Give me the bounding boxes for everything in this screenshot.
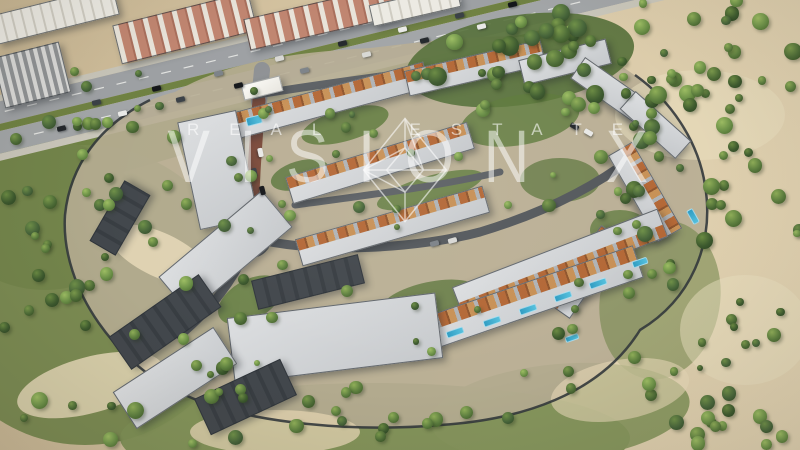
tree — [491, 79, 502, 90]
tree — [70, 67, 79, 76]
tree — [181, 198, 192, 209]
tree — [454, 152, 462, 160]
tree — [613, 227, 621, 235]
tree — [43, 195, 57, 209]
tree — [341, 122, 351, 132]
tree — [660, 49, 668, 57]
aerial-render-scene: VISION X REAL ESTATE — [0, 0, 800, 450]
tree — [577, 63, 591, 77]
tree — [70, 289, 82, 301]
tree — [411, 302, 420, 311]
tree — [568, 19, 587, 38]
tree — [687, 12, 701, 26]
trees-layer — [0, 0, 800, 450]
tree — [102, 117, 113, 128]
tree — [752, 339, 760, 347]
tree — [566, 383, 576, 393]
tree — [460, 406, 473, 419]
tree — [667, 278, 679, 290]
tree — [42, 115, 56, 129]
tree — [619, 73, 627, 81]
tree — [228, 430, 243, 445]
tree — [77, 149, 88, 160]
tree — [736, 298, 744, 306]
tree — [594, 150, 608, 164]
tree — [81, 81, 92, 92]
tree — [735, 94, 744, 103]
tree — [698, 338, 707, 347]
tree — [621, 88, 632, 99]
tree — [647, 269, 657, 279]
tree — [585, 35, 597, 47]
tree — [721, 16, 730, 25]
tree — [215, 388, 223, 396]
tree — [90, 118, 102, 130]
tree — [596, 210, 605, 219]
tree — [103, 199, 115, 211]
tree — [552, 327, 565, 340]
tree — [266, 312, 278, 324]
tree — [721, 358, 730, 367]
tree — [24, 305, 34, 315]
tree — [45, 293, 59, 307]
tree — [784, 43, 800, 60]
tree — [341, 285, 353, 297]
tree — [670, 367, 678, 375]
tree — [341, 387, 351, 397]
tree — [104, 173, 114, 183]
tree — [392, 205, 400, 213]
tree — [719, 180, 729, 190]
tree — [480, 100, 490, 110]
tree — [676, 164, 684, 172]
tree — [349, 111, 356, 118]
tree — [654, 151, 665, 162]
tree — [744, 148, 753, 157]
tree — [730, 323, 738, 331]
tree — [407, 149, 415, 157]
tree — [527, 54, 542, 69]
tree — [492, 39, 506, 53]
tree — [632, 120, 639, 127]
tree — [524, 30, 540, 46]
tree — [639, 0, 648, 8]
tree — [277, 260, 288, 271]
tree — [107, 402, 115, 410]
tree — [101, 253, 109, 261]
tree — [761, 439, 772, 450]
tree — [722, 404, 735, 417]
tree — [245, 170, 257, 182]
tree — [647, 76, 656, 85]
tree — [126, 121, 139, 134]
tree — [167, 130, 181, 144]
tree — [710, 421, 721, 432]
tree — [728, 75, 741, 88]
tree — [41, 244, 50, 253]
tree — [179, 276, 193, 290]
tree — [700, 395, 715, 410]
tree — [422, 418, 433, 429]
tree — [31, 232, 40, 241]
tree — [135, 70, 142, 77]
tree — [725, 104, 735, 114]
tree — [191, 360, 203, 372]
tree — [353, 201, 365, 213]
tree — [550, 172, 557, 179]
tree — [725, 210, 742, 227]
tree — [427, 347, 436, 356]
tree — [716, 117, 733, 134]
tree — [567, 324, 577, 334]
tree — [730, 0, 742, 7]
tree — [31, 392, 48, 409]
tree — [218, 219, 231, 232]
tree — [748, 158, 763, 173]
tree — [645, 389, 657, 401]
tree — [254, 360, 260, 366]
tree — [155, 102, 164, 111]
tree — [188, 439, 197, 448]
tree — [683, 98, 697, 112]
tree — [588, 102, 600, 114]
tree — [574, 278, 583, 287]
tree — [337, 416, 347, 426]
tree — [694, 61, 707, 74]
tree — [741, 340, 750, 349]
tree — [1, 190, 16, 205]
tree — [561, 108, 569, 116]
tree — [446, 34, 463, 51]
tree — [332, 150, 340, 158]
tree — [691, 436, 706, 450]
tree — [428, 67, 447, 86]
tree — [776, 308, 784, 316]
tree — [716, 200, 726, 210]
tree — [278, 200, 286, 208]
tree — [767, 328, 781, 342]
tree — [669, 415, 684, 430]
tree — [375, 431, 386, 442]
tree — [220, 357, 234, 371]
tree — [68, 401, 77, 410]
tree — [127, 402, 144, 419]
tree — [84, 280, 95, 291]
tree — [771, 189, 786, 204]
tree — [634, 19, 650, 35]
tree — [719, 151, 728, 160]
tree — [614, 187, 623, 196]
tree — [411, 71, 421, 81]
tree — [623, 270, 633, 280]
tree — [162, 180, 173, 191]
tree — [394, 224, 400, 230]
tree — [724, 43, 733, 52]
tree — [80, 320, 91, 331]
tree — [793, 230, 800, 238]
tree — [643, 131, 657, 145]
tree — [32, 269, 45, 282]
tree — [542, 199, 556, 213]
tree — [129, 329, 141, 341]
tree — [413, 338, 420, 345]
tree — [623, 287, 635, 299]
tree — [663, 262, 676, 275]
tree — [234, 173, 243, 182]
tree — [649, 86, 667, 104]
tree — [0, 322, 10, 333]
tree — [325, 108, 336, 119]
tree — [238, 393, 248, 403]
tree — [752, 13, 768, 29]
tree — [388, 412, 399, 423]
tree — [620, 193, 632, 205]
tree — [234, 312, 247, 325]
tree — [331, 406, 342, 417]
tree — [265, 106, 272, 113]
tree — [266, 155, 273, 162]
tree — [760, 420, 774, 434]
tree — [238, 274, 249, 285]
tree — [250, 87, 258, 95]
tree — [637, 226, 653, 242]
tree — [504, 201, 512, 209]
tree — [148, 237, 158, 247]
tree — [696, 232, 713, 249]
tree — [546, 50, 563, 67]
tree — [617, 57, 626, 66]
tree — [22, 186, 32, 196]
tree — [568, 41, 578, 51]
tree — [82, 188, 91, 197]
tree — [515, 16, 527, 28]
tree — [103, 432, 118, 447]
tree — [100, 267, 113, 280]
tree — [563, 366, 574, 377]
tree — [492, 66, 505, 79]
tree — [20, 414, 28, 422]
tree — [474, 306, 481, 313]
tree — [707, 67, 721, 81]
tree — [571, 97, 586, 112]
tree — [697, 365, 703, 371]
tree — [10, 133, 22, 145]
tree — [646, 108, 657, 119]
tree — [758, 76, 767, 85]
tree — [633, 185, 645, 197]
tree — [369, 129, 378, 138]
tree — [289, 419, 304, 434]
tree — [72, 117, 82, 127]
tree — [226, 156, 236, 166]
tree — [728, 141, 739, 152]
tree — [552, 25, 570, 43]
tree — [134, 105, 141, 112]
tree — [302, 395, 315, 408]
tree — [628, 351, 641, 364]
tree — [502, 412, 514, 424]
tree — [349, 381, 363, 395]
tree — [776, 430, 789, 443]
tree — [478, 69, 486, 77]
tree — [703, 178, 720, 195]
tree — [138, 220, 152, 234]
tree — [722, 386, 737, 401]
tree — [284, 210, 296, 222]
tree — [207, 371, 214, 378]
tree — [247, 227, 254, 234]
tree — [571, 305, 579, 313]
tree — [520, 369, 528, 377]
tree — [178, 333, 190, 345]
tree — [586, 85, 604, 103]
tree — [530, 84, 545, 99]
tree — [785, 81, 796, 92]
